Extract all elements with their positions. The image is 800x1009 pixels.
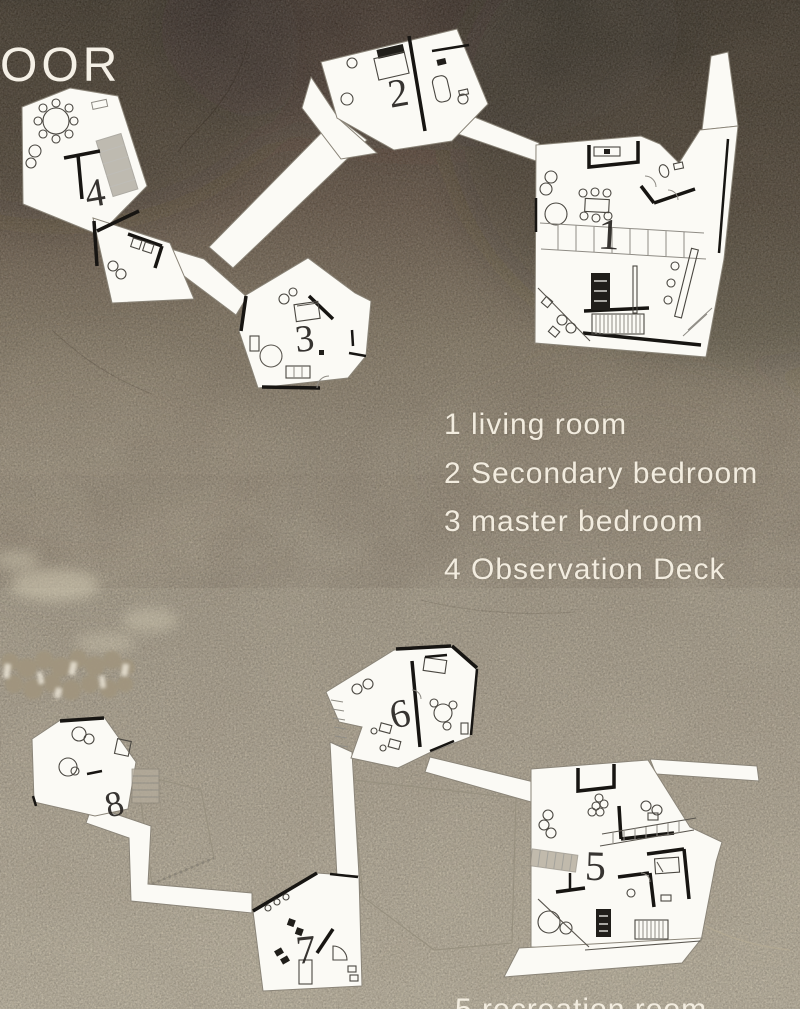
- legend-item-secondary-bedroom: 2 Secondary bedroom: [444, 457, 758, 491]
- floor-plan-poster: 1 2 3 4: [0, 0, 800, 1009]
- upper-floor-title-partial: OOR: [0, 38, 121, 93]
- room-number-1: 1: [597, 209, 622, 259]
- legend-item-living-room: 1 living room: [444, 408, 627, 442]
- room-number-5: 5: [584, 844, 607, 891]
- lower-legend-partial-line: 5 recreation room: [455, 993, 707, 1009]
- legend-item-master-bedroom: 3 master bedroom: [444, 505, 703, 539]
- legend-item-observation-deck: 4 Observation Deck: [444, 553, 725, 587]
